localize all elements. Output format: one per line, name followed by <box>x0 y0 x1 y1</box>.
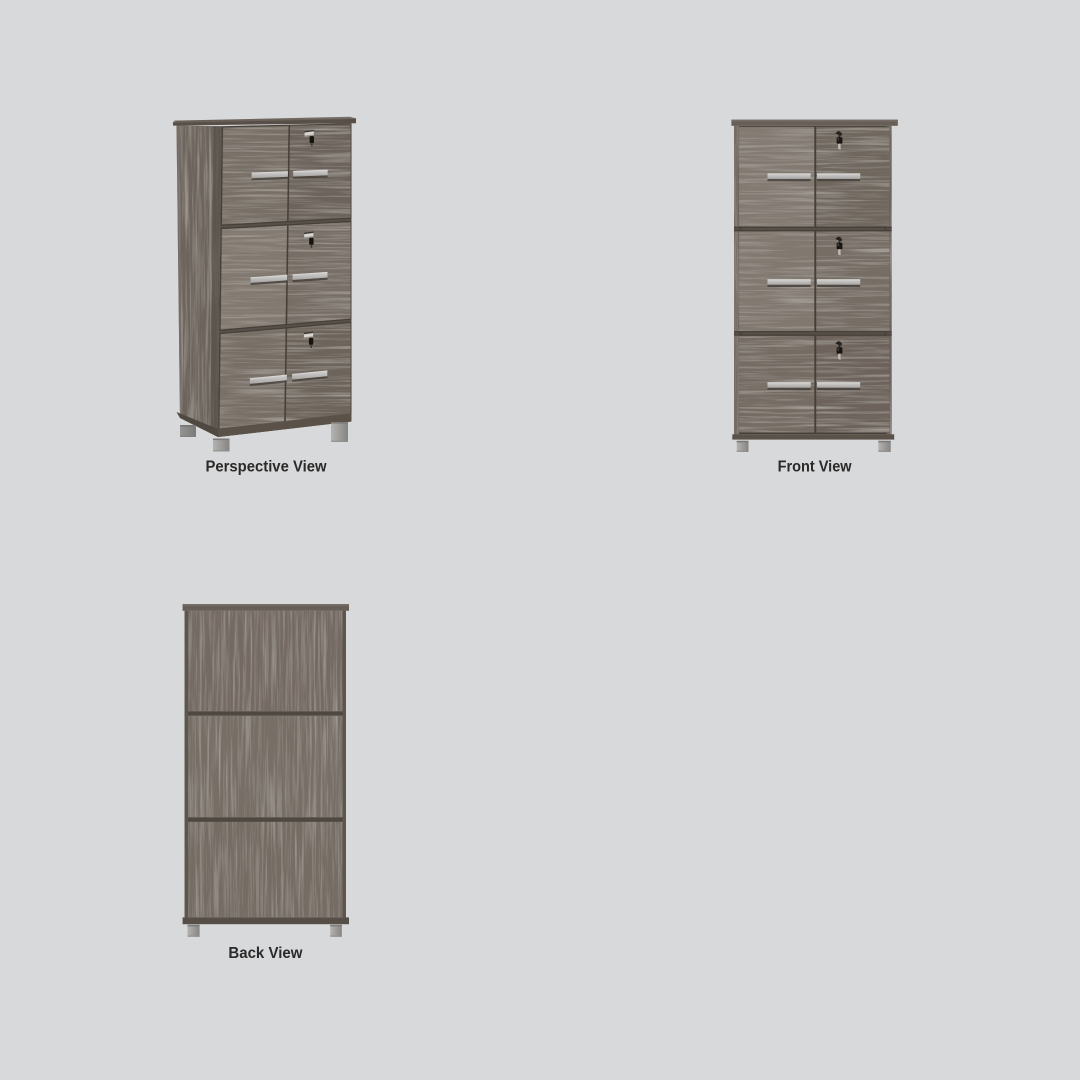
svg-text:Front View: Front View <box>778 459 853 476</box>
svg-text:Back View: Back View <box>228 945 303 962</box>
svg-text:Perspective View: Perspective View <box>206 459 328 476</box>
